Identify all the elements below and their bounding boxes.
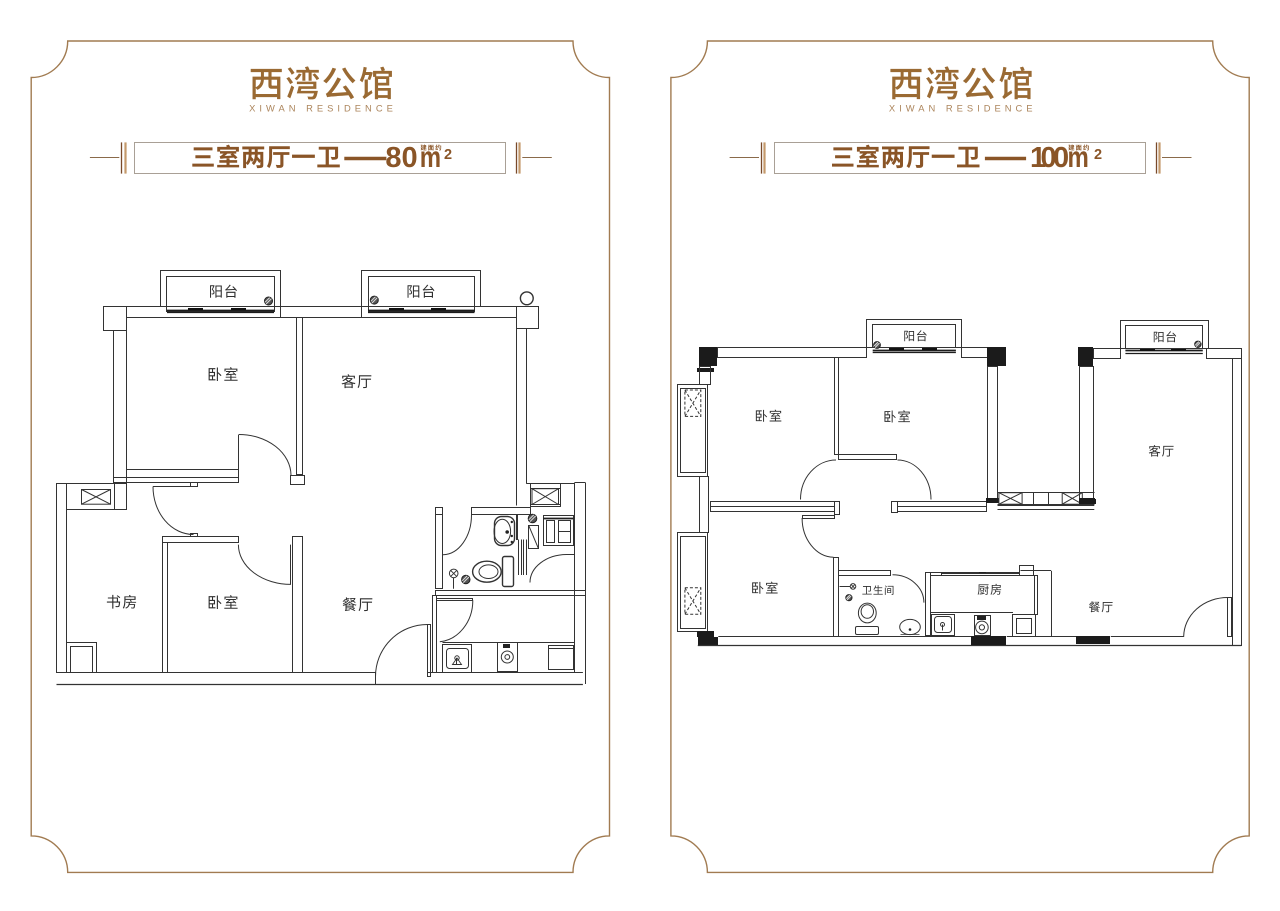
svg-text:m: m [1068,139,1089,173]
svg-text:XIWAN RESIDENCE: XIWAN RESIDENCE [889,102,1037,113]
svg-text:XIWAN RESIDENCE: XIWAN RESIDENCE [249,102,397,113]
svg-text:2: 2 [444,147,452,163]
svg-text:m: m [420,139,441,173]
svg-text:80: 80 [385,142,417,174]
svg-text:2: 2 [1094,147,1102,163]
